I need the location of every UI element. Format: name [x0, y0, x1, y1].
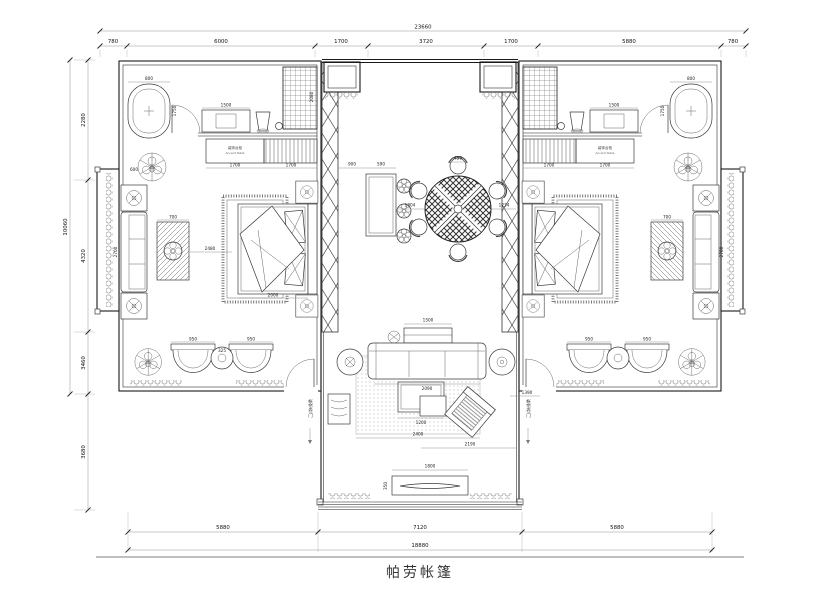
dining-table [425, 176, 491, 242]
dim-top-seg: 5880 [622, 39, 636, 45]
dim-left-seg: 2280 [81, 113, 87, 127]
dim-bottom-total: 18880 [411, 543, 429, 549]
dim-label: 950 [643, 337, 651, 342]
dim-top-seg: 1700 [334, 39, 348, 45]
entry-wall [322, 60, 518, 63]
dim-label: 2480 [205, 246, 216, 251]
dim-label: 700 [663, 215, 671, 220]
dim-label: 590 [377, 162, 385, 167]
dim-label: 1500 [423, 318, 434, 323]
sofa [368, 343, 486, 379]
dim-label: 2700 [719, 246, 724, 257]
door-note-text: 帐帘卷门 [308, 398, 313, 419]
dining-area [338, 157, 516, 262]
dining-chair [449, 244, 467, 261]
dim-top-total: 23660 [414, 25, 432, 31]
dim-label: 2000 [268, 293, 279, 298]
suite-right-use [519, 61, 745, 394]
dim-label: 800 [687, 76, 695, 81]
dim-label: 2190 [465, 442, 476, 447]
accent-cabinet-label-cn: 装饰台柜 [228, 145, 243, 150]
dim-left-seg: 3460 [81, 356, 87, 370]
console-table [404, 328, 452, 343]
bar-counter [366, 174, 396, 236]
side-table-left [337, 349, 363, 375]
bar-chair [397, 229, 411, 243]
deck-edge [318, 502, 522, 510]
dim-label: 1234 [499, 203, 510, 208]
floor-plan-svg: 帐帘卷门 帐帘卷门 23660 780 6000 1700 3720 1700 … [0, 0, 837, 592]
dim-top-seg: 780 [728, 39, 739, 45]
dim-label: 325 [218, 348, 226, 353]
dim-label: 456 [454, 156, 462, 161]
dim-label: 1200 [416, 420, 427, 425]
dim-label: 2090 [422, 386, 433, 391]
dim-label: 1500 [221, 103, 232, 108]
dim-label: 1750 [172, 105, 177, 116]
side-table-right [489, 349, 515, 375]
dim-label: 600 [130, 167, 138, 172]
dim-label: 950 [247, 337, 255, 342]
dim-left-seg: 4320 [81, 249, 87, 263]
dim-label: 1500 [609, 103, 620, 108]
dim-label: 1390 [522, 390, 533, 395]
dim-top-seg: 6000 [214, 39, 228, 45]
terrace [318, 470, 522, 510]
center-side-left-use [317, 62, 370, 505]
dim-label: 950 [189, 337, 197, 342]
small-bench [328, 394, 350, 424]
door-note-text: 帐帘卷门 [526, 398, 531, 419]
dim-label: 350 [383, 482, 388, 490]
dim-label: 1700 [544, 163, 555, 168]
door-note-left: 帐帘卷门 [308, 398, 313, 444]
dim-label: 1700 [600, 163, 611, 168]
terrace-bench [392, 476, 468, 495]
living-area [328, 324, 540, 448]
suite-left-use [95, 61, 321, 394]
dim-label: 800 [145, 76, 153, 81]
accent-cabinet-label-cn: 装饰台柜 [598, 145, 613, 150]
accent-cabinet-label-en: Accent Table [226, 151, 245, 155]
dim-label: 900 [348, 162, 356, 167]
dim-label: 2080 [309, 91, 314, 102]
dim-left-total: 10060 [63, 218, 69, 236]
dim-label: 950 [585, 337, 593, 342]
plan: 帐帘卷门 帐帘卷门 [95, 60, 745, 510]
dim-label: 1804 [405, 203, 416, 208]
dim-label: 2400 [413, 432, 424, 437]
dim-top-seg: 780 [108, 39, 119, 45]
floor-plan-sheet: 帐帘卷门 帐帘卷门 23660 780 6000 1700 3720 1700 … [0, 0, 837, 592]
center-side-right-use [470, 62, 523, 505]
accent-cabinet-label-en: Accent Table [596, 151, 615, 155]
dim-label: 1800 [425, 464, 436, 469]
dim-bottom-seg: 5880 [216, 525, 230, 531]
door-note-right: 帐帘卷门 [526, 398, 531, 444]
dim-top-seg: 1700 [504, 39, 518, 45]
dim-bottom-seg: 7120 [413, 525, 427, 531]
dim-top-seg: 3720 [419, 39, 433, 45]
dim-bottom-seg: 5880 [610, 525, 624, 531]
dim-label: 700 [169, 215, 177, 220]
dim-label: 1700 [230, 163, 241, 168]
dim-label: 1750 [660, 105, 665, 116]
dim-label: 2700 [113, 246, 118, 257]
dim-label: 1700 [286, 163, 297, 168]
dim-left-seg: 3680 [81, 445, 87, 459]
drawing-title: 帕劳帐篷 [386, 565, 454, 581]
